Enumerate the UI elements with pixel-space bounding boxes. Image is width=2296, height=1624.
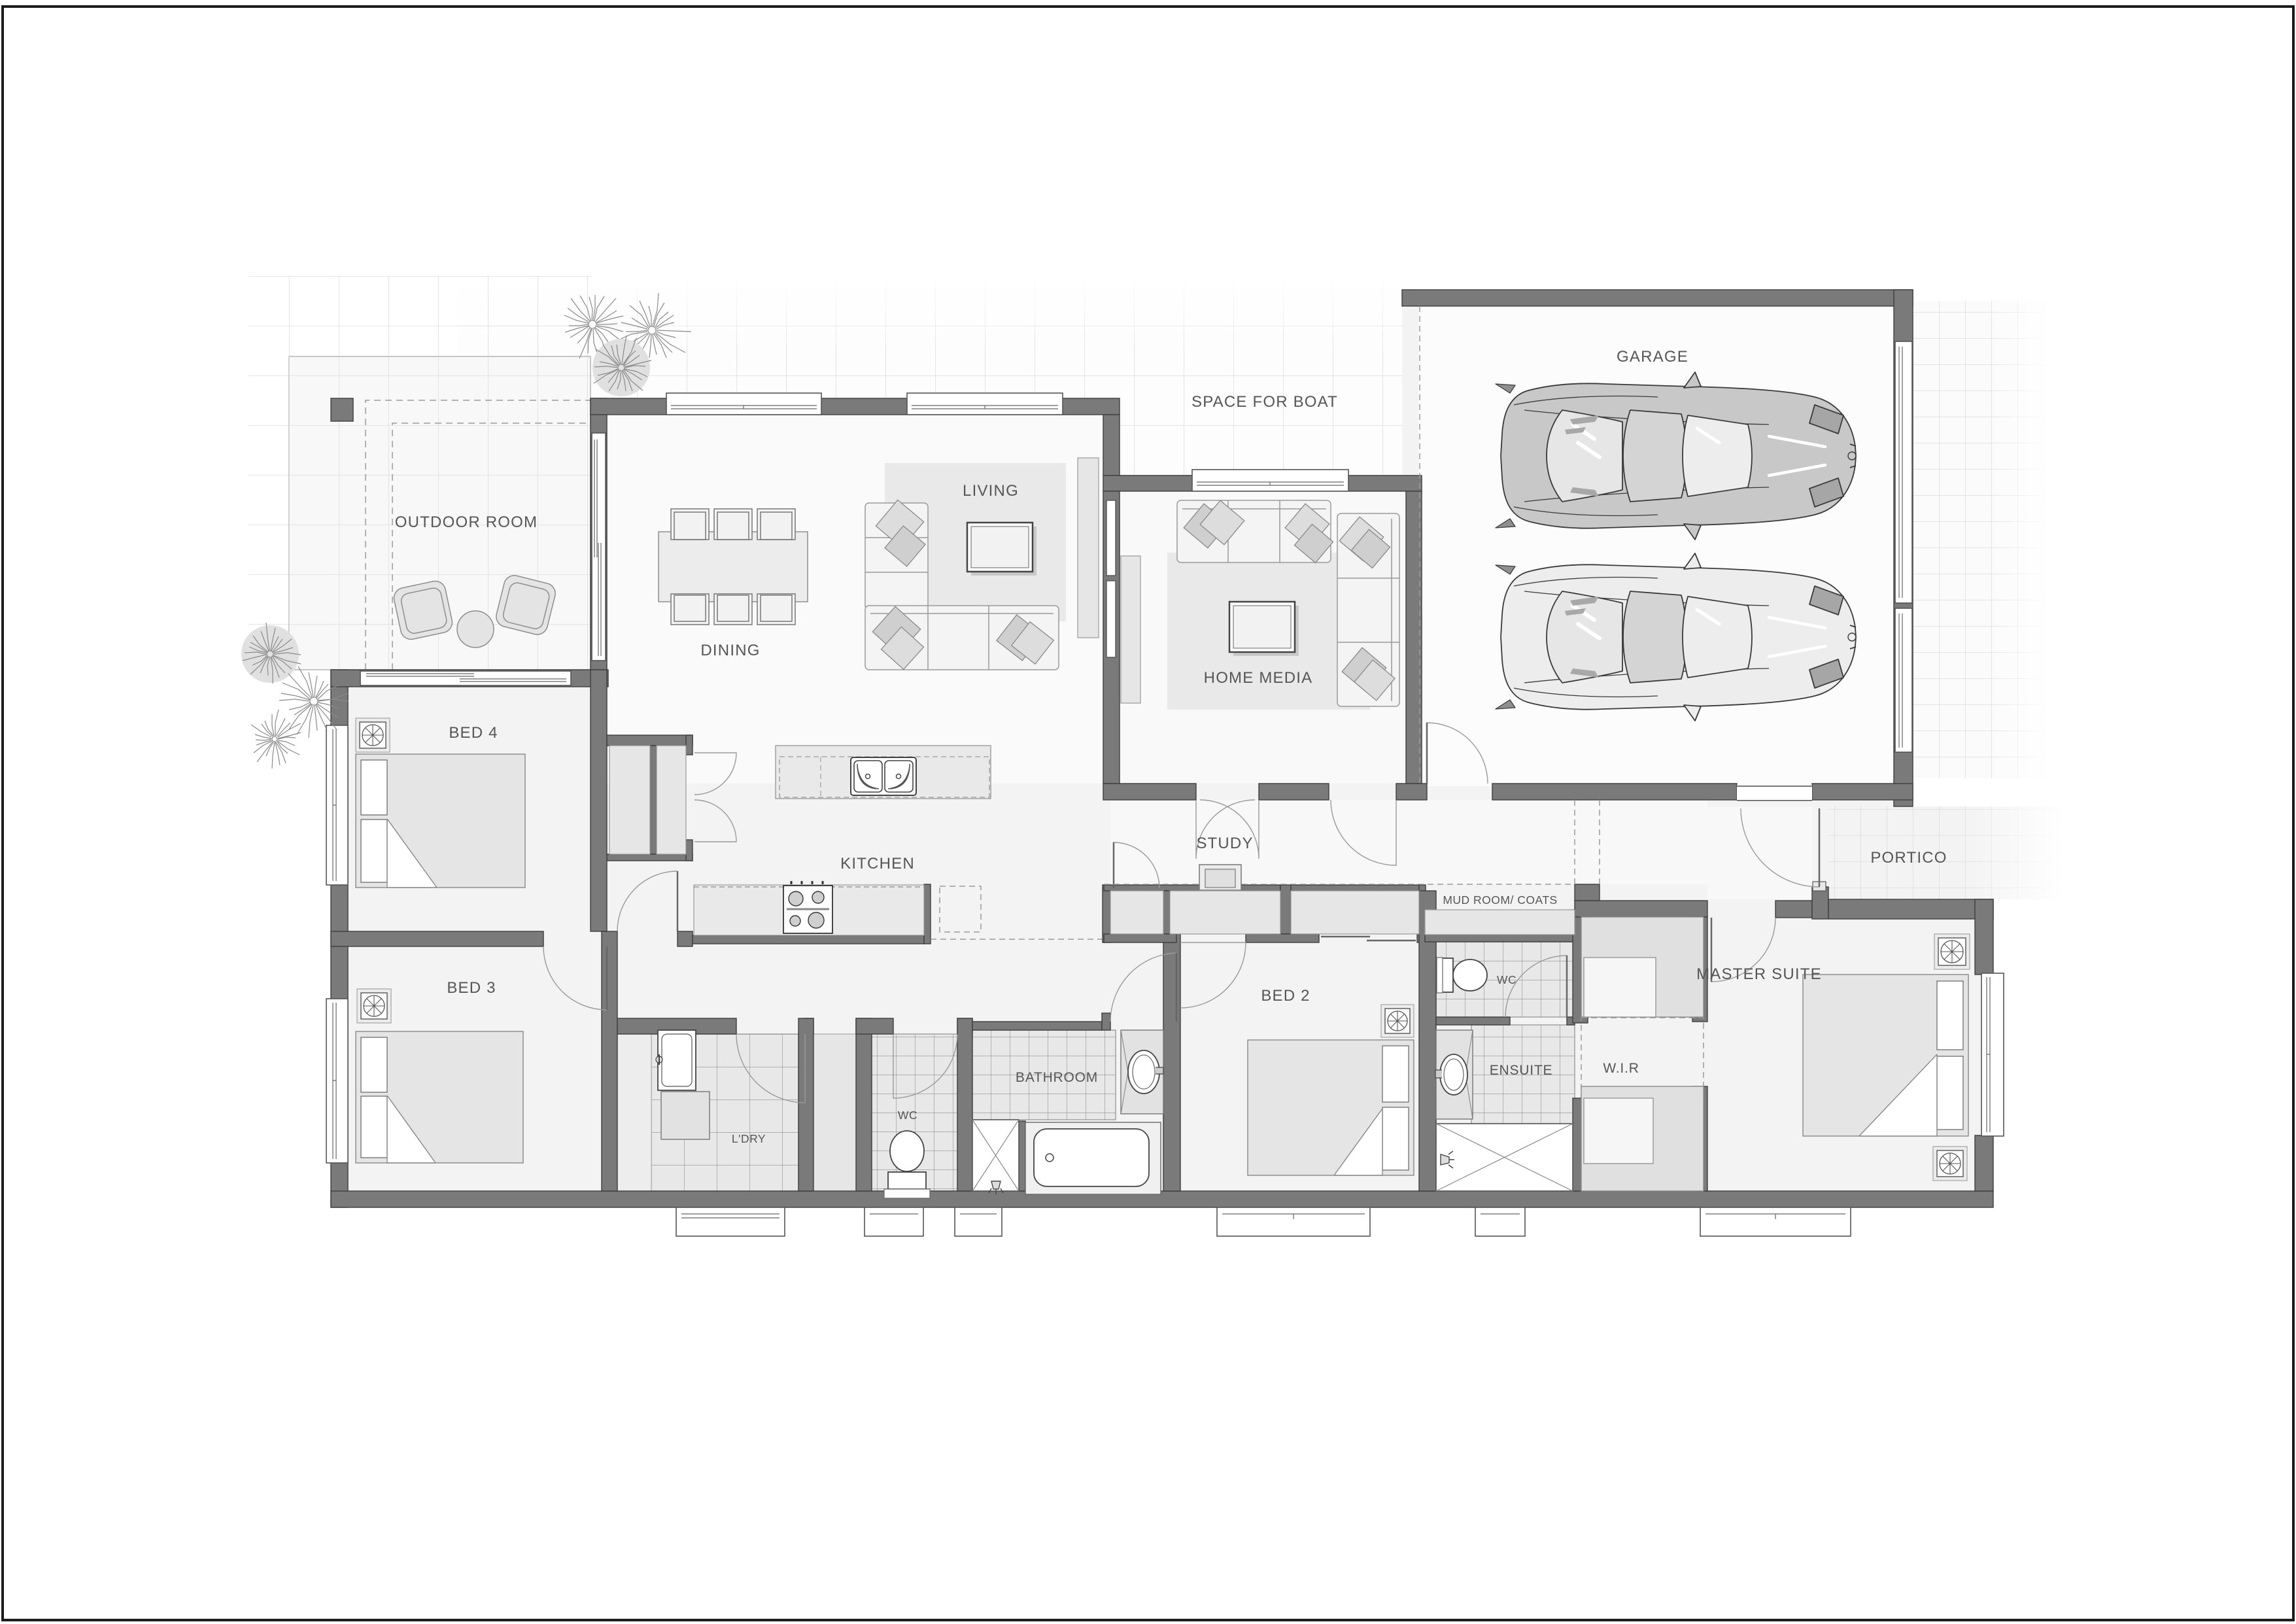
svg-text:GARAGE: GARAGE	[1617, 348, 1688, 366]
svg-text:MUD ROOM/ COATS: MUD ROOM/ COATS	[1443, 893, 1557, 907]
svg-text:MASTER SUITE: MASTER SUITE	[1696, 965, 1822, 983]
svg-text:WC: WC	[898, 1109, 917, 1122]
svg-text:KITCHEN: KITCHEN	[840, 855, 915, 872]
svg-text:HOME MEDIA: HOME MEDIA	[1204, 669, 1313, 687]
svg-text:BED 4: BED 4	[449, 724, 498, 742]
svg-text:BED 2: BED 2	[1261, 987, 1310, 1005]
svg-text:W.I.R: W.I.R	[1603, 1061, 1639, 1076]
svg-text:BED 3: BED 3	[447, 979, 496, 997]
svg-text:ENSUITE: ENSUITE	[1490, 1063, 1553, 1078]
svg-text:L'DRY: L'DRY	[732, 1132, 766, 1145]
svg-text:STUDY: STUDY	[1196, 835, 1253, 852]
svg-text:SPACE FOR BOAT: SPACE FOR BOAT	[1191, 393, 1338, 411]
svg-text:DINING: DINING	[700, 642, 760, 659]
svg-text:BATHROOM: BATHROOM	[1016, 1070, 1098, 1085]
svg-text:WC: WC	[1497, 973, 1516, 986]
svg-text:LIVING: LIVING	[963, 482, 1019, 500]
svg-text:OUTDOOR ROOM: OUTDOOR ROOM	[395, 513, 538, 531]
svg-text:PORTICO: PORTICO	[1870, 849, 1947, 867]
